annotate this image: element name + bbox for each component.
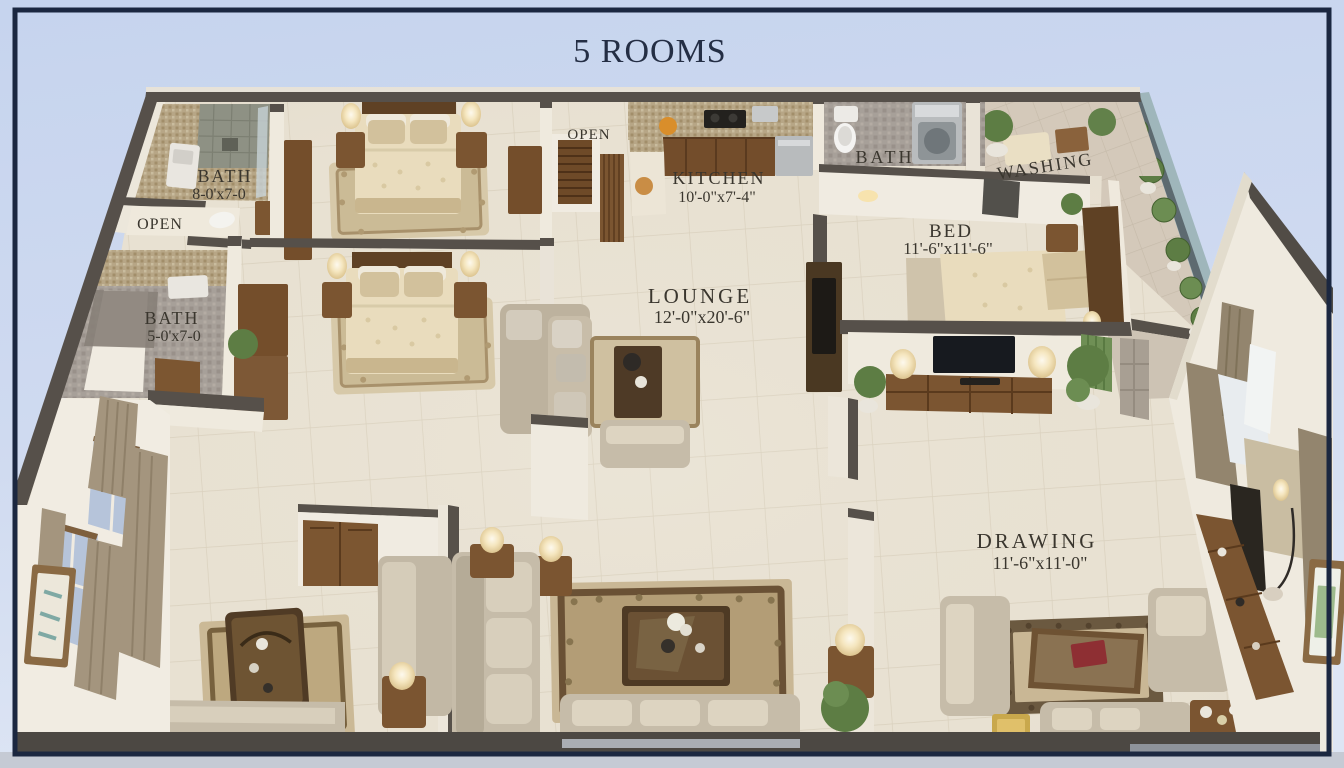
svg-text:5 ROOMS: 5 ROOMS: [573, 33, 726, 70]
svg-text:DRAWING: DRAWING: [977, 529, 1098, 553]
svg-text:5-0'x7-0: 5-0'x7-0: [147, 328, 201, 345]
svg-text:KITCHEN: KITCHEN: [673, 168, 766, 188]
svg-text:OPEN: OPEN: [567, 127, 610, 143]
svg-text:11'-6"x11'-0": 11'-6"x11'-0": [993, 553, 1088, 573]
svg-text:8-0'x7-0: 8-0'x7-0: [192, 186, 246, 203]
svg-text:BATH: BATH: [855, 147, 914, 167]
svg-text:10'-0"x7'-4": 10'-0"x7'-4": [678, 189, 755, 206]
svg-text:LOUNGE: LOUNGE: [648, 284, 752, 308]
svg-text:BATH: BATH: [197, 166, 252, 186]
svg-text:BATH: BATH: [144, 308, 199, 328]
svg-text:12'-0"x20'-6": 12'-0"x20'-6": [654, 307, 750, 327]
svg-text:OPEN: OPEN: [137, 216, 183, 233]
svg-text:11'-6"x11'-6": 11'-6"x11'-6": [903, 239, 993, 258]
